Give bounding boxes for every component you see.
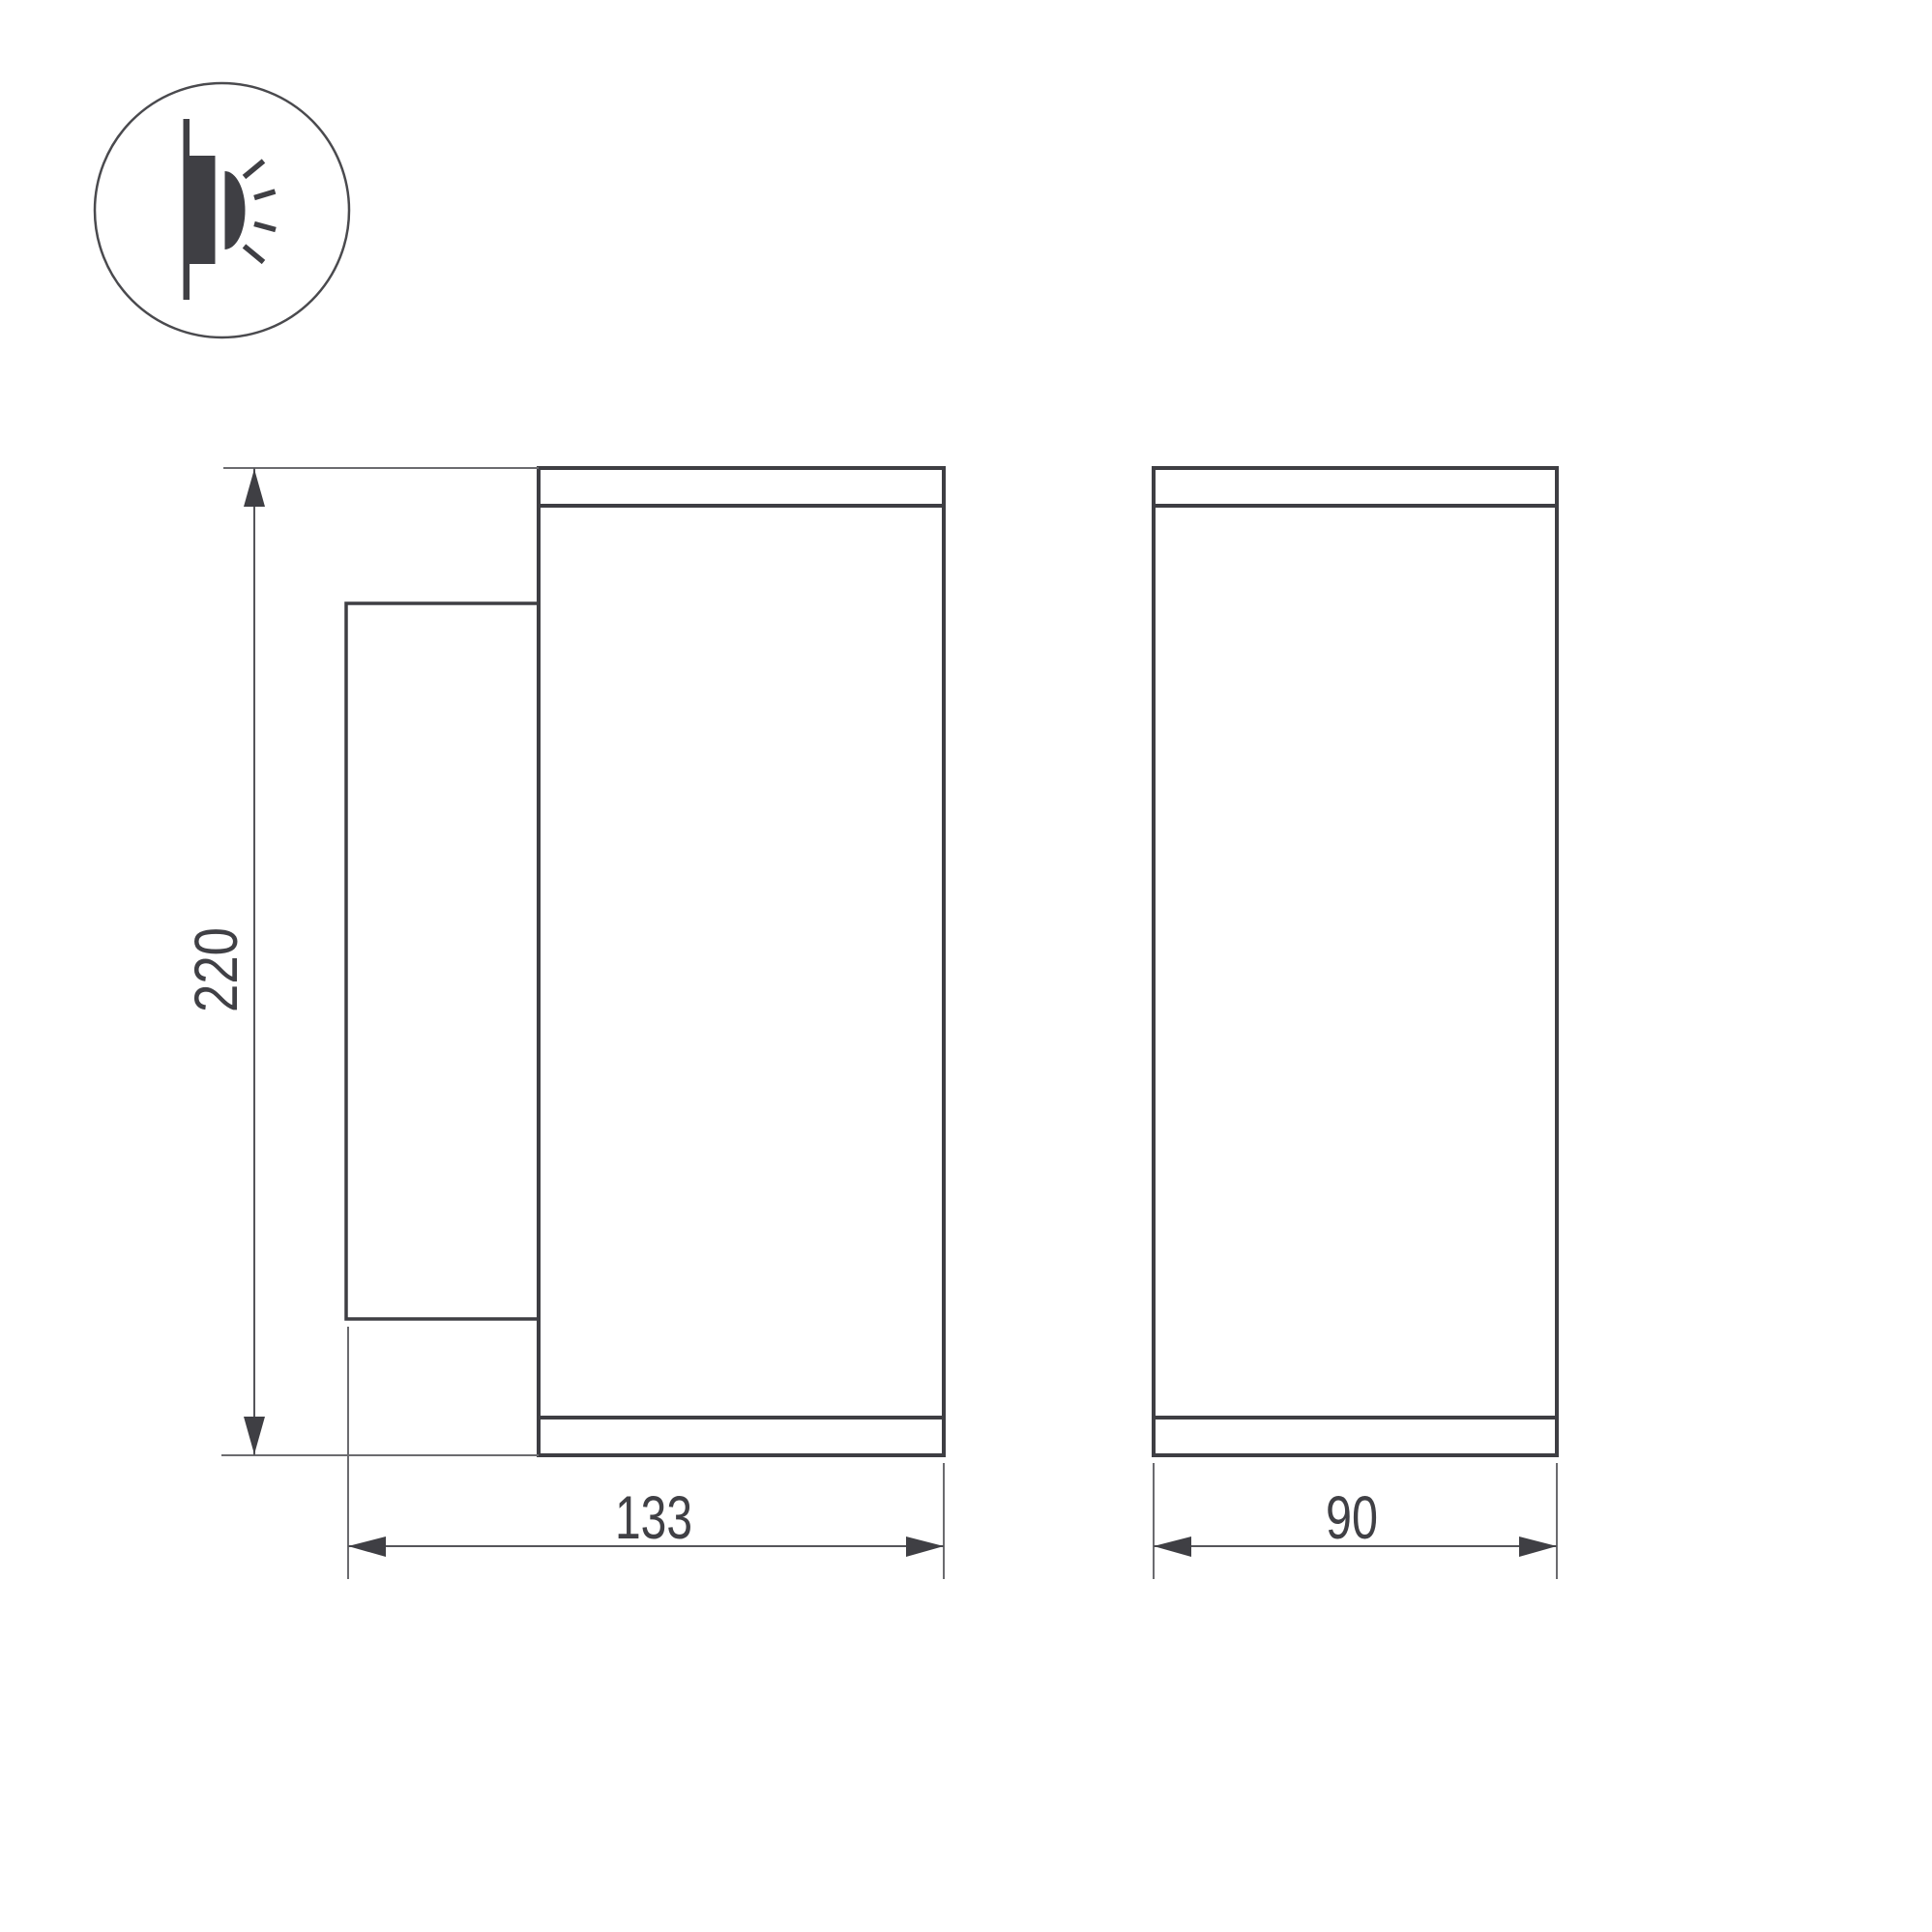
- side-view: [346, 468, 944, 1455]
- wall-light-icon: [95, 83, 349, 337]
- technical-drawing: 220 133 90: [0, 0, 1932, 1932]
- icon-light-rays: [245, 161, 277, 263]
- height-dimension: 220: [183, 468, 539, 1455]
- depth-dimension-label: 133: [615, 1484, 692, 1552]
- icon-ray-3: [254, 224, 276, 230]
- side-view-body-outline: [539, 468, 944, 1455]
- icon-circle: [95, 83, 349, 337]
- height-dimension-label: 220: [183, 927, 250, 1012]
- depth-dim-arrow-right: [906, 1537, 944, 1557]
- icon-ray-1: [245, 161, 264, 178]
- icon-lamp-body: [187, 156, 216, 264]
- depth-dim-arrow-left: [348, 1537, 386, 1557]
- width-dimension-label: 90: [1326, 1484, 1378, 1552]
- icon-ray-2: [254, 191, 276, 198]
- depth-dimension: 133: [348, 1327, 944, 1579]
- front-view-body-outline: [1154, 468, 1557, 1455]
- height-dim-arrow-down: [244, 1417, 265, 1454]
- icon-ray-4: [245, 247, 264, 263]
- height-dim-arrow-up: [244, 469, 265, 507]
- front-view: [1154, 468, 1557, 1455]
- side-view-mounting-plate: [346, 603, 539, 1319]
- width-dim-arrow-left: [1154, 1537, 1191, 1557]
- width-dim-arrow-right: [1519, 1537, 1557, 1557]
- icon-light-dome: [225, 171, 246, 249]
- width-dimension: 90: [1154, 1463, 1557, 1579]
